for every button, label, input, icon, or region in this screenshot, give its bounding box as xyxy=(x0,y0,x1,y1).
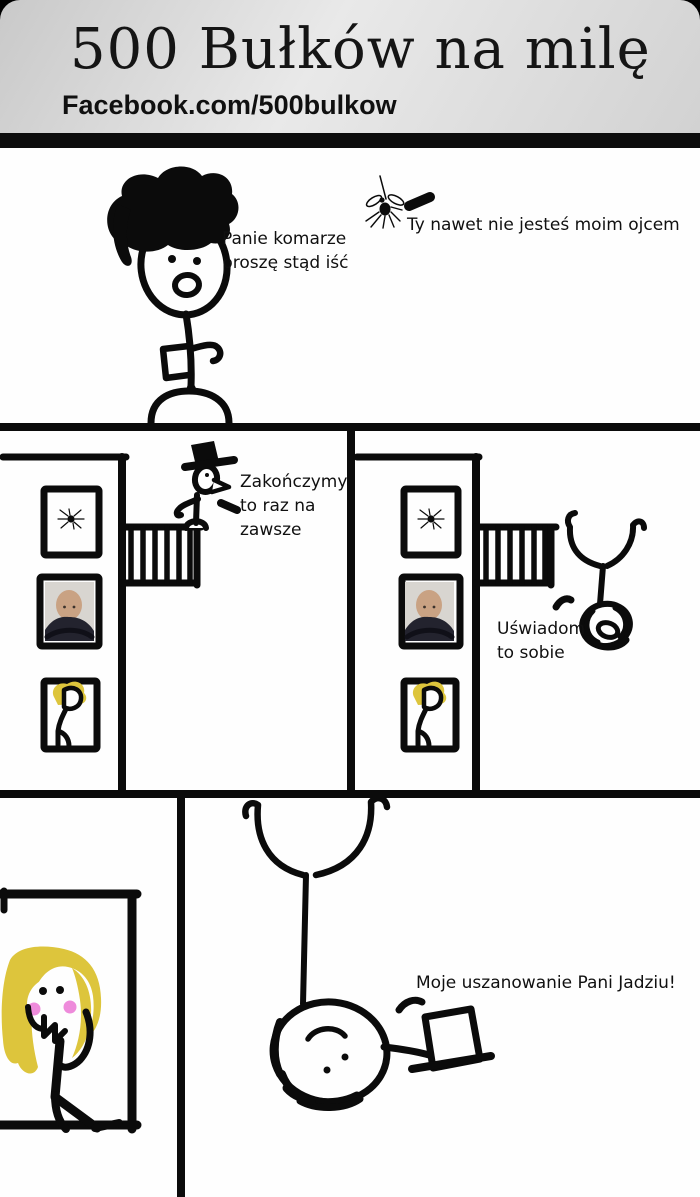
mosquito-speech-text: Ty nawet nie jesteś moim ojcem xyxy=(407,213,680,237)
hanging-body xyxy=(303,875,306,1004)
facebook-url: Facebook.com/500bulkow xyxy=(62,90,397,121)
hanging-arm xyxy=(384,1047,429,1055)
putin-photo xyxy=(45,582,94,641)
spider-icon xyxy=(58,509,84,529)
header: 500 Bułków na milę Facebook.com/500bulko… xyxy=(0,0,700,148)
hat-man-open-mouth xyxy=(212,480,229,492)
man-eye xyxy=(168,255,176,263)
woman-blush xyxy=(64,1001,77,1014)
hanging-leg xyxy=(316,798,387,875)
balcony-left xyxy=(122,527,201,585)
hat-man-eye xyxy=(205,473,209,477)
man-open-mouth xyxy=(174,274,200,296)
falling-leg xyxy=(568,513,600,566)
spider-icon xyxy=(418,509,444,529)
hat-man-speech-text: Zakończymy to raz na zawsze xyxy=(240,470,360,542)
falling-body xyxy=(600,566,603,604)
mosquito-icon xyxy=(365,176,405,228)
blonde-woman-figure xyxy=(2,947,119,1129)
hat-man-figure xyxy=(177,441,237,528)
putin-photo xyxy=(405,582,454,641)
woman-eye xyxy=(56,986,64,994)
left-building xyxy=(3,457,201,790)
hanging-man-figure xyxy=(245,798,491,1108)
ground-mound xyxy=(151,391,229,423)
panel-1: Panie komarze proszę stąd iść Ty nawet n… xyxy=(0,148,700,423)
panel-3: Moje uszanowanie Pani Jadziu! xyxy=(0,798,700,1197)
comic-page: 500 Bułków na milę Facebook.com/500bulko… xyxy=(0,0,700,1197)
man-speech-text: Panie komarze proszę stąd iść xyxy=(222,227,372,275)
man-right-arm xyxy=(191,345,220,361)
falling-leg xyxy=(607,521,644,566)
hanging-eye xyxy=(342,1054,349,1061)
balcony-right xyxy=(476,527,556,585)
falling-man-speech-text: Uświadom to sobie xyxy=(497,617,607,665)
panel-3-drawing xyxy=(0,798,700,1197)
speech-dash xyxy=(399,1000,422,1010)
hanging-leg xyxy=(245,803,303,875)
blonde-figure-small xyxy=(413,682,446,746)
man-eye xyxy=(193,257,201,265)
panel-1-drawing xyxy=(0,148,700,423)
page-title: 500 Bułków na milę xyxy=(70,20,651,80)
speech-dash xyxy=(221,503,237,510)
hat-brim xyxy=(185,460,234,467)
stick-man-figure xyxy=(107,166,238,423)
hanging-man-speech-text: Moje uszanowanie Pani Jadziu! xyxy=(416,971,676,995)
hanging-eye xyxy=(324,1067,331,1074)
speech-dash xyxy=(556,599,571,607)
man-left-arm xyxy=(163,346,189,378)
panel-2: Zakończymy to raz na zawsze Uświadom to … xyxy=(0,423,700,798)
blonde-figure-small xyxy=(53,682,86,746)
woman-eye xyxy=(39,987,47,995)
swat-mark xyxy=(409,197,430,206)
